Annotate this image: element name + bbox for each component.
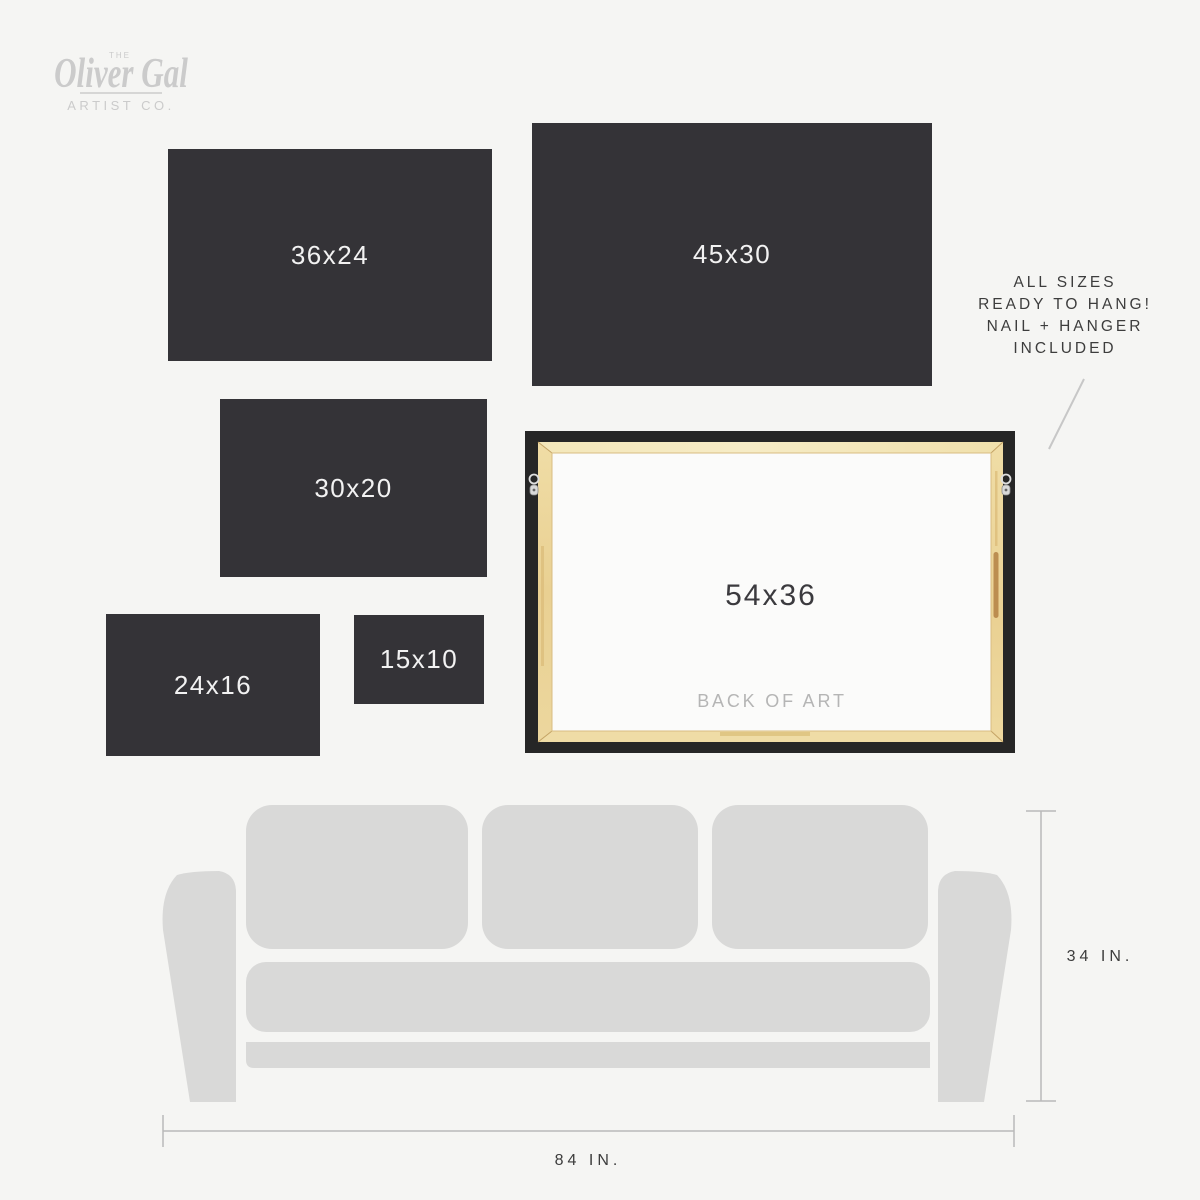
- svg-text:BACK OF ART: BACK OF ART: [697, 691, 847, 711]
- svg-text:Oliver Gal: Oliver Gal: [54, 49, 188, 96]
- svg-text:ARTIST CO.: ARTIST CO.: [67, 98, 174, 113]
- svg-text:54x36: 54x36: [725, 579, 817, 612]
